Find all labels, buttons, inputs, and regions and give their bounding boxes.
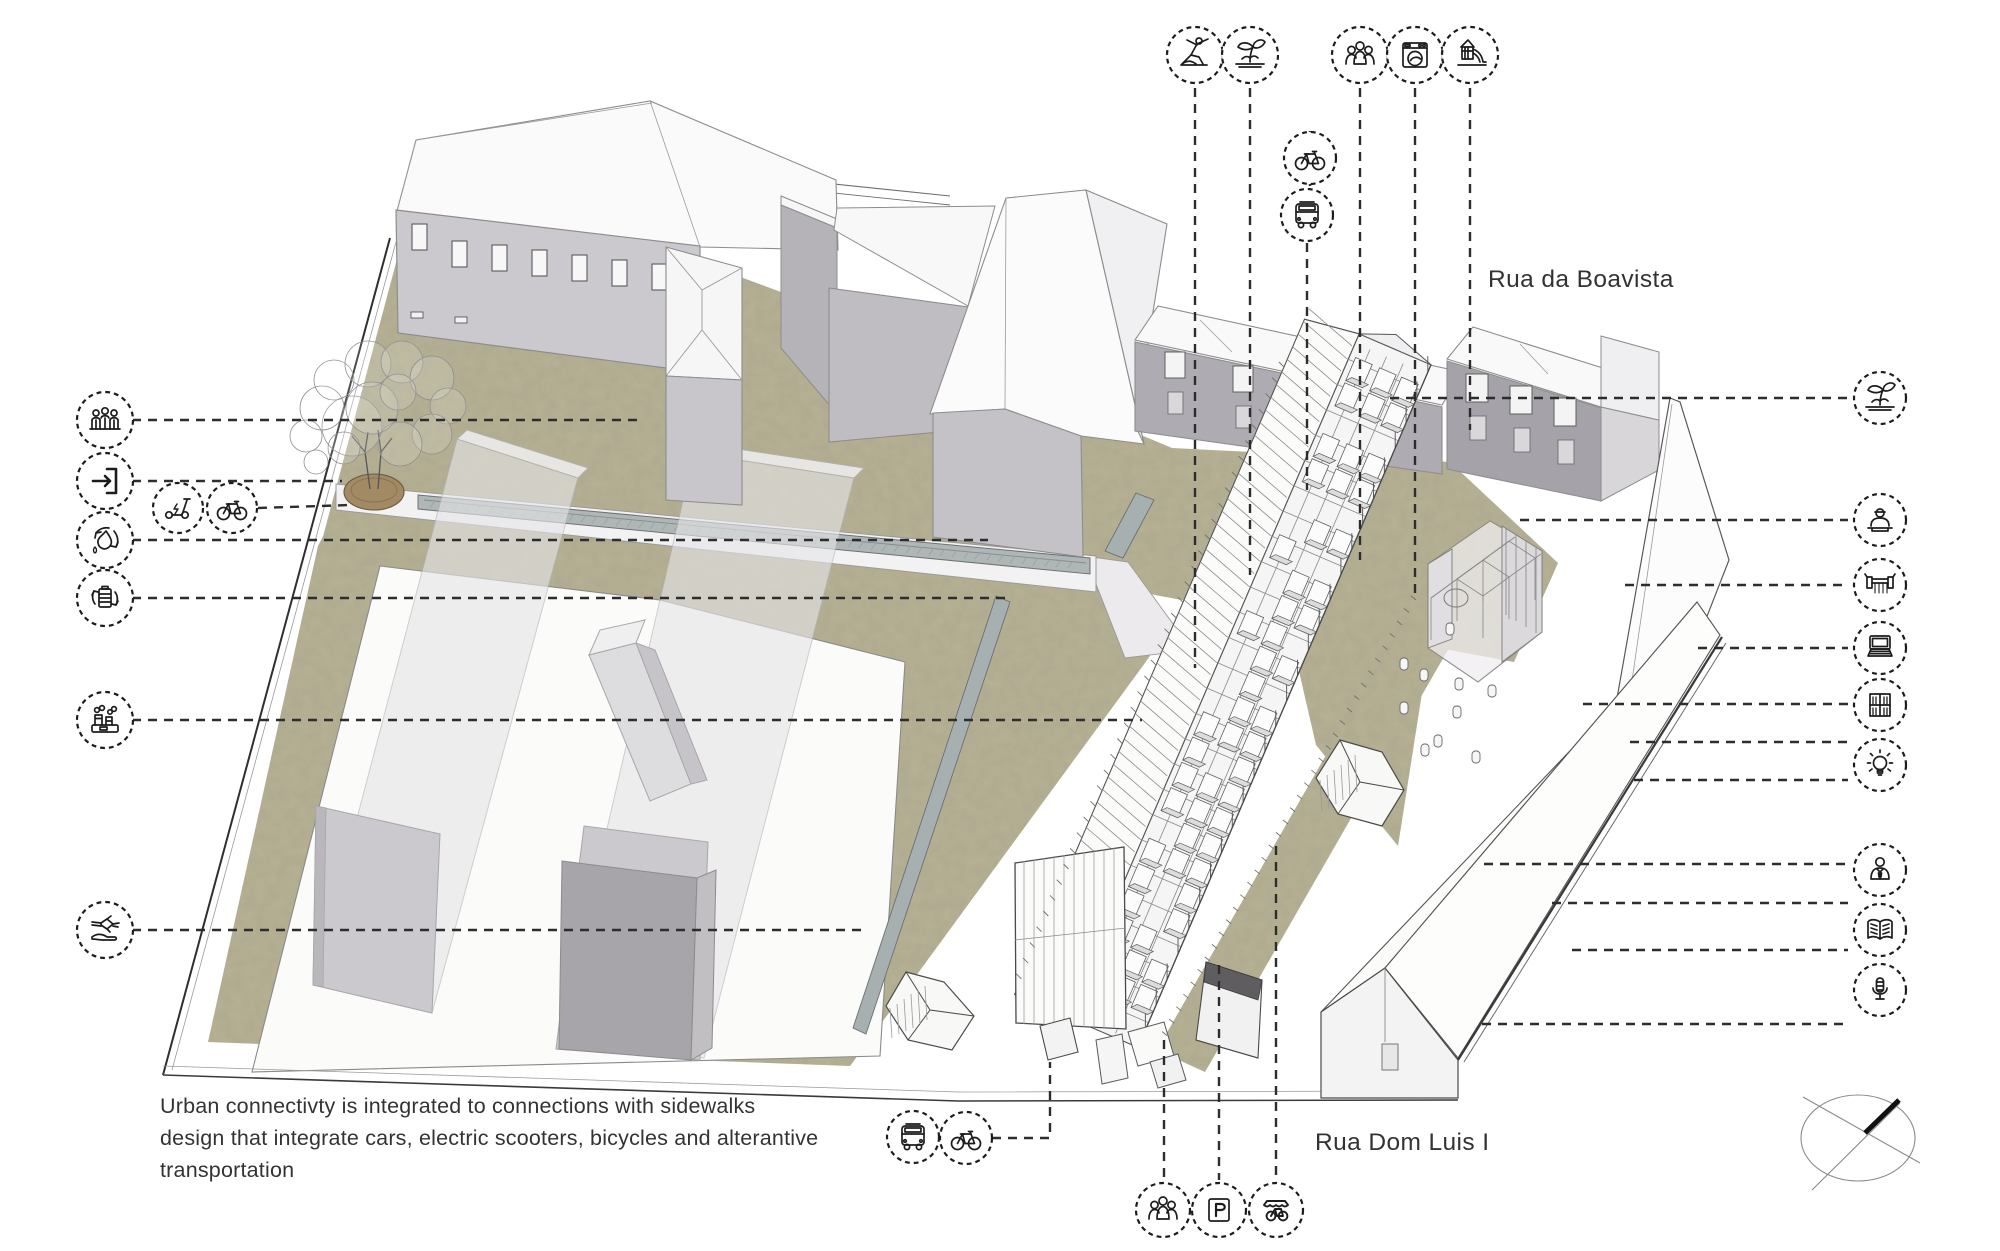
svg-text:Urban connectivty is integrate: Urban connectivty is integrated to conne… [160, 1094, 755, 1118]
svg-text:Rua Dom Luis I: Rua Dom Luis I [1315, 1129, 1489, 1156]
svg-text:design that integrate cars, el: design that integrate cars, electric sco… [160, 1126, 818, 1150]
svg-text:transportation: transportation [160, 1158, 294, 1182]
svg-text:Rua da Boavista: Rua da Boavista [1488, 266, 1674, 293]
